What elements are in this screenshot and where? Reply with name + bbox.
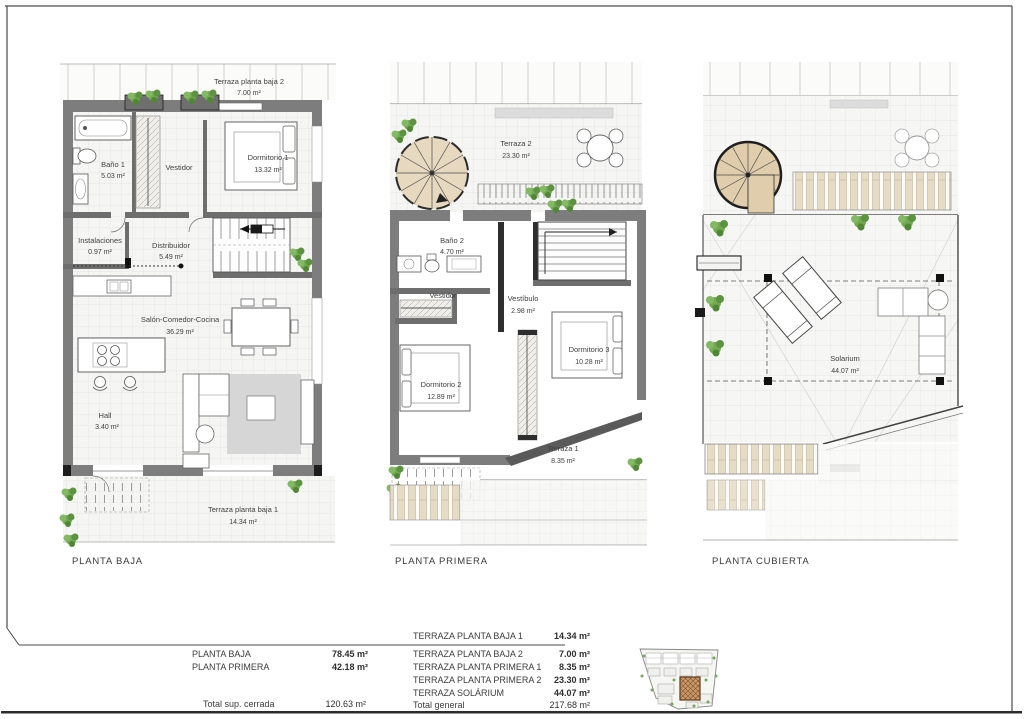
summary-row-value: 8.35 m² [510,662,590,672]
room-area: 14.34 m² [229,519,257,526]
room-label: Salón-Comedor-Cocina [141,315,220,324]
sink-icon [73,174,88,204]
lower-roof-tiles [818,444,958,484]
summary-row-label: PLANTA PRIMERA [192,662,269,672]
upper-strip-paving [390,62,642,104]
pergola-slats [390,485,460,520]
awning [495,108,613,118]
room-label: Dormitorio 3 [569,345,610,354]
wardrobe-rail [136,116,160,208]
room-label: Vestíbulo [508,294,539,303]
awning [830,100,888,108]
room-label: Dormitorio 2 [421,380,462,389]
bathroom2-fixtures [397,254,481,272]
pergola-slats [707,480,765,510]
room-area: 0.97 m² [88,249,112,256]
room-label: Instalaciones [78,236,122,245]
floor-plan-planta-primera: Terraza 2 23.30 m² Baño 2 4.70 m² Vestid… [385,60,657,552]
plan-caption-planta-baja: PLANTA BAJA [72,556,143,567]
room-label: Terraza planta baja 2 [214,77,284,86]
lower-roof-tiles [460,480,647,545]
summary-row-value: 42.18 m² [288,662,368,672]
room-area: 5.03 m² [101,173,125,180]
room-label: Baño 1 [101,160,125,169]
summary-row-label: TERRAZA PLANTA BAJA 2 [413,649,523,659]
summary-row-value: 23.30 m² [510,675,590,685]
room-area: 8.35 m² [551,458,575,465]
staircase [538,222,626,280]
room-label: Hall [99,411,112,420]
pergola-slats [705,444,818,474]
deck-area [85,478,149,512]
bed-icon [400,345,470,411]
plan-caption-planta-cubierta: PLANTA CUBIERTA [712,556,810,567]
summary-row-label: TERRAZA SOLÁRIUM [413,688,504,698]
title-block-bottom-rule [1,711,1022,714]
floor-plan-planta-cubierta: Solarium 44.07 m² [695,60,970,545]
room-area: 7.00 m² [237,90,261,97]
toilet-icon [73,148,96,164]
summary-total-value: 120.63 m² [288,699,366,709]
room-area: 5.49 m² [159,254,183,261]
wardrobe-rail [400,300,452,317]
room-label: Terraza planta baja 1 [208,505,278,514]
room-area: 36.29 m² [166,329,194,336]
room-label: Distribuidor [152,241,190,250]
room-area: 10.28 m² [575,359,603,366]
upper-strip [703,62,958,95]
room-label: Vestidor [429,291,457,300]
summary-row-value: 7.00 m² [510,649,590,659]
room-label: Terraza 2 [500,139,531,148]
room-area: 23.30 m² [502,153,530,160]
summary-row-value: 78.45 m² [288,649,368,659]
room-area: 13.32 m² [254,167,282,174]
room-label: Baño 2 [440,236,464,245]
pergola-slats [793,172,951,210]
room-area: 44.07 m² [831,368,859,375]
plant-icon [628,458,643,472]
room-area: 12.89 m² [427,394,455,401]
summary-total-label: Total general [413,700,465,710]
wall-detail [695,308,705,317]
room-label: Solarium [830,354,860,363]
room-label: Terraza 1 [547,444,578,453]
lower-roof-tiles [765,480,958,540]
room-area: 3.40 m² [95,424,119,431]
summary-row-label: PLANTA BAJA [192,649,251,659]
highlighted-unit [680,677,700,700]
room-label: Dormitorio 1 [248,153,289,162]
site-plan-thumbnail [628,646,728,712]
wardrobe-rail [518,330,537,440]
plan-caption-planta-primera: PLANTA PRIMERA [395,556,488,567]
bathtub-icon [75,116,131,140]
summary-row-label: TERRAZA PLANTA BAJA 1 [413,631,523,641]
staircase [213,218,290,272]
floor-plan-planta-baja: Terraza planta baja 2 7.00 m² [55,62,347,554]
summary-row-value: 14.34 m² [510,631,590,641]
room-area: 2.98 m² [511,308,535,315]
summary-total-label: Total sup. cerrada [203,699,275,709]
summary-total-value: 217.68 m² [510,700,590,710]
plant-icon [64,534,79,548]
room-area: 4.70 m² [440,249,464,256]
room-label: Vestidor [165,163,193,172]
summary-row-value: 44.07 m² [510,688,590,698]
spiral-staircase [396,137,468,209]
